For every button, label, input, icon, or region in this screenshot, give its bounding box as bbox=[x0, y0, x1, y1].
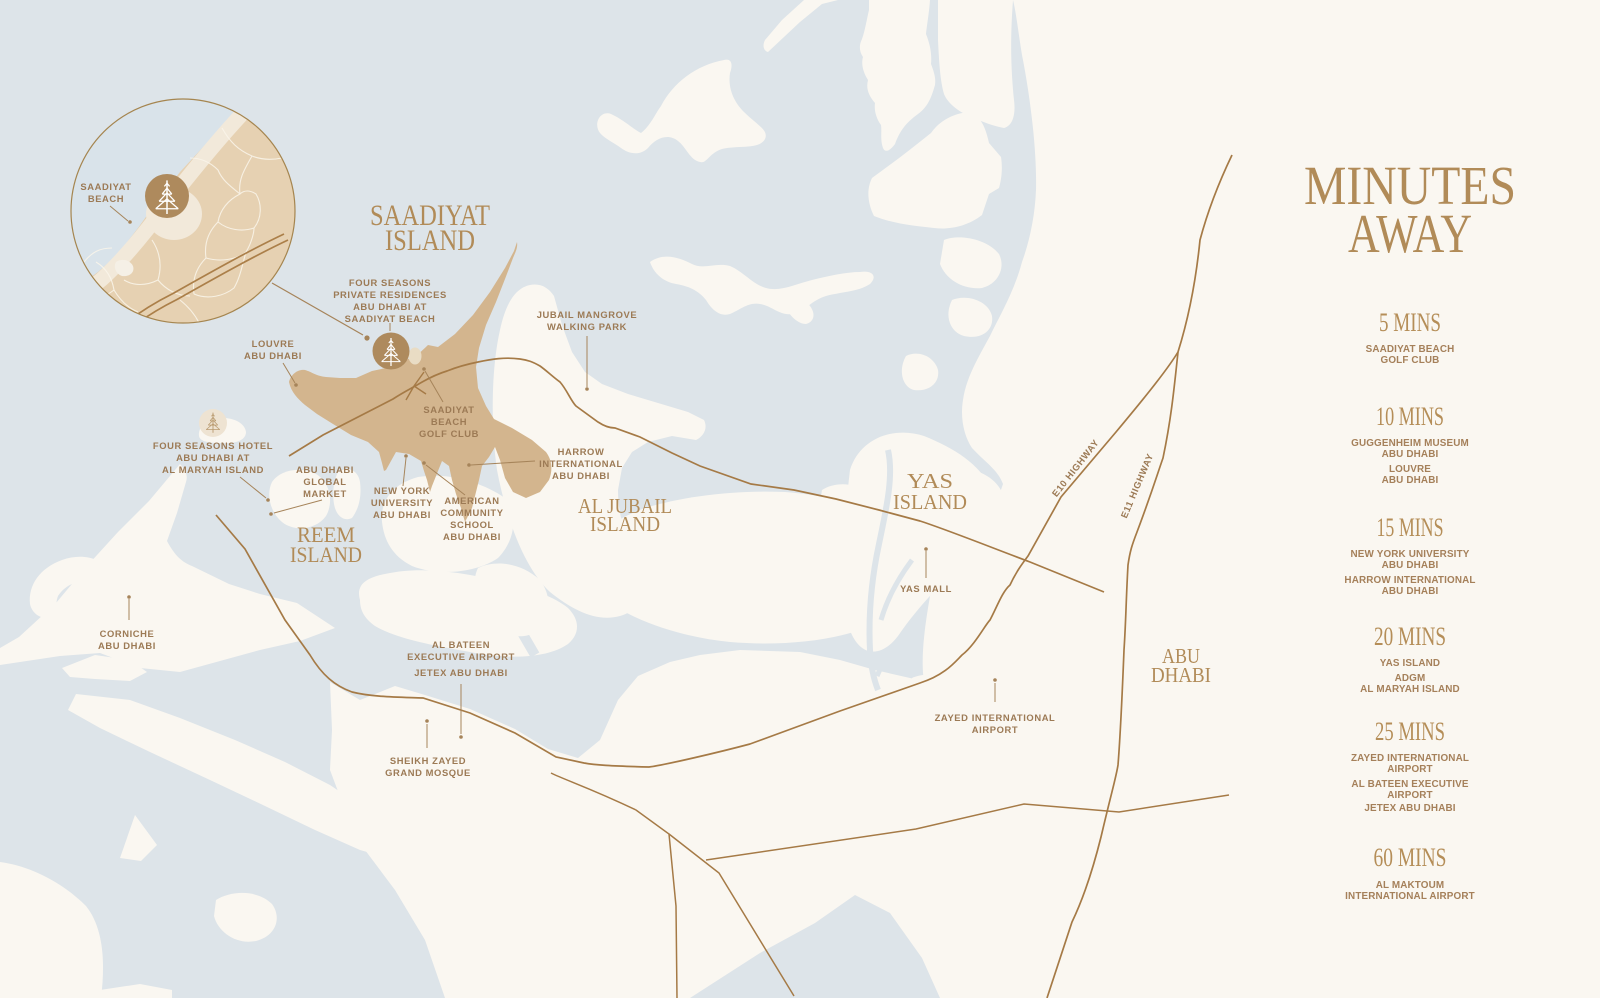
svg-text:DHABI: DHABI bbox=[1151, 663, 1211, 687]
svg-text:ISLAND: ISLAND bbox=[893, 490, 967, 514]
svg-text:WALKING PARK: WALKING PARK bbox=[547, 321, 627, 332]
svg-text:ABU DHABI: ABU DHABI bbox=[443, 531, 501, 542]
svg-text:ABU DHABI: ABU DHABI bbox=[1382, 475, 1439, 486]
svg-text:FOUR SEASONS HOTEL: FOUR SEASONS HOTEL bbox=[153, 440, 273, 451]
svg-text:SAADIYAT: SAADIYAT bbox=[423, 404, 474, 415]
svg-text:AL BATEEN EXECUTIVE: AL BATEEN EXECUTIVE bbox=[1351, 779, 1468, 790]
svg-text:5 MINS: 5 MINS bbox=[1379, 308, 1441, 337]
svg-text:AL BATEEN: AL BATEEN bbox=[432, 639, 490, 650]
svg-text:HARROW INTERNATIONAL: HARROW INTERNATIONAL bbox=[1344, 575, 1475, 586]
svg-text:MARKET: MARKET bbox=[303, 488, 347, 499]
svg-text:NEW YORK: NEW YORK bbox=[374, 485, 430, 496]
svg-text:YAS MALL: YAS MALL bbox=[900, 583, 952, 594]
svg-text:PRIVATE RESIDENCES: PRIVATE RESIDENCES bbox=[333, 289, 447, 300]
svg-text:NEW YORK UNIVERSITY: NEW YORK UNIVERSITY bbox=[1351, 549, 1470, 560]
svg-text:ISLAND: ISLAND bbox=[590, 512, 660, 536]
svg-text:ZAYED INTERNATIONAL: ZAYED INTERNATIONAL bbox=[1351, 753, 1469, 764]
svg-text:SHEIKH ZAYED: SHEIKH ZAYED bbox=[390, 755, 466, 766]
svg-text:ISLAND: ISLAND bbox=[290, 542, 362, 567]
svg-text:AWAY: AWAY bbox=[1348, 203, 1472, 264]
svg-text:UNIVERSITY: UNIVERSITY bbox=[371, 497, 433, 508]
svg-text:AIRPORT: AIRPORT bbox=[1387, 790, 1433, 801]
svg-text:GOLF CLUB: GOLF CLUB bbox=[1381, 355, 1440, 366]
svg-text:AMERICAN: AMERICAN bbox=[444, 495, 499, 506]
svg-text:JUBAIL MANGROVE: JUBAIL MANGROVE bbox=[537, 309, 638, 320]
svg-text:SAADIYAT BEACH: SAADIYAT BEACH bbox=[345, 313, 436, 324]
svg-text:ADGM: ADGM bbox=[1395, 673, 1426, 684]
svg-text:10 MINS: 10 MINS bbox=[1376, 402, 1444, 431]
svg-text:AL MAKTOUM: AL MAKTOUM bbox=[1376, 880, 1445, 891]
svg-text:HARROW: HARROW bbox=[558, 446, 605, 457]
svg-text:60 MINS: 60 MINS bbox=[1374, 843, 1447, 872]
svg-text:COMMUNITY: COMMUNITY bbox=[440, 507, 503, 518]
svg-text:CORNICHE: CORNICHE bbox=[100, 628, 155, 639]
svg-text:AIRPORT: AIRPORT bbox=[1387, 764, 1433, 775]
svg-text:SAADIYAT BEACH: SAADIYAT BEACH bbox=[1366, 344, 1455, 355]
svg-text:ABU DHABI: ABU DHABI bbox=[98, 640, 156, 651]
svg-text:LOUVRE: LOUVRE bbox=[252, 338, 295, 349]
svg-text:ABU DHABI: ABU DHABI bbox=[1382, 449, 1439, 460]
svg-text:ABU DHABI: ABU DHABI bbox=[244, 350, 302, 361]
svg-text:JETEX ABU DHABI: JETEX ABU DHABI bbox=[414, 667, 508, 678]
svg-text:BEACH: BEACH bbox=[431, 416, 467, 427]
svg-text:JETEX ABU DHABI: JETEX ABU DHABI bbox=[1364, 803, 1455, 814]
svg-text:FOUR SEASONS: FOUR SEASONS bbox=[349, 277, 431, 288]
svg-text:GOLF CLUB: GOLF CLUB bbox=[419, 428, 479, 439]
svg-text:25 MINS: 25 MINS bbox=[1375, 717, 1445, 746]
svg-text:20 MINS: 20 MINS bbox=[1374, 622, 1446, 651]
svg-text:AL MARYAH ISLAND: AL MARYAH ISLAND bbox=[1360, 684, 1460, 695]
svg-text:ABU DHABI: ABU DHABI bbox=[1382, 560, 1439, 571]
svg-text:ZAYED INTERNATIONAL: ZAYED INTERNATIONAL bbox=[935, 712, 1056, 723]
svg-text:ABU DHABI AT: ABU DHABI AT bbox=[353, 301, 427, 312]
svg-text:AIRPORT: AIRPORT bbox=[972, 724, 1018, 735]
svg-text:BEACH: BEACH bbox=[88, 193, 124, 204]
svg-text:LOUVRE: LOUVRE bbox=[1389, 464, 1431, 475]
svg-text:SCHOOL: SCHOOL bbox=[450, 519, 494, 530]
svg-text:EXECUTIVE AIRPORT: EXECUTIVE AIRPORT bbox=[407, 651, 515, 662]
svg-text:ABU DHABI: ABU DHABI bbox=[552, 470, 610, 481]
svg-text:ABU DHABI: ABU DHABI bbox=[373, 509, 431, 520]
svg-text:GLOBAL: GLOBAL bbox=[303, 476, 346, 487]
svg-text:YAS ISLAND: YAS ISLAND bbox=[1380, 658, 1440, 669]
svg-text:ABU DHABI: ABU DHABI bbox=[1382, 586, 1439, 597]
svg-text:GRAND MOSQUE: GRAND MOSQUE bbox=[385, 767, 471, 778]
svg-text:INTERNATIONAL AIRPORT: INTERNATIONAL AIRPORT bbox=[1345, 891, 1475, 902]
svg-text:15 MINS: 15 MINS bbox=[1377, 513, 1444, 542]
svg-text:AL MARYAH ISLAND: AL MARYAH ISLAND bbox=[162, 464, 264, 475]
svg-text:INTERNATIONAL: INTERNATIONAL bbox=[539, 458, 623, 469]
svg-text:ABU DHABI AT: ABU DHABI AT bbox=[176, 452, 250, 463]
svg-text:GUGGENHEIM MUSEUM: GUGGENHEIM MUSEUM bbox=[1351, 438, 1469, 449]
svg-text:ISLAND: ISLAND bbox=[385, 224, 475, 257]
svg-text:SAADIYAT: SAADIYAT bbox=[80, 181, 131, 192]
svg-text:ABU DHABI: ABU DHABI bbox=[296, 464, 354, 475]
